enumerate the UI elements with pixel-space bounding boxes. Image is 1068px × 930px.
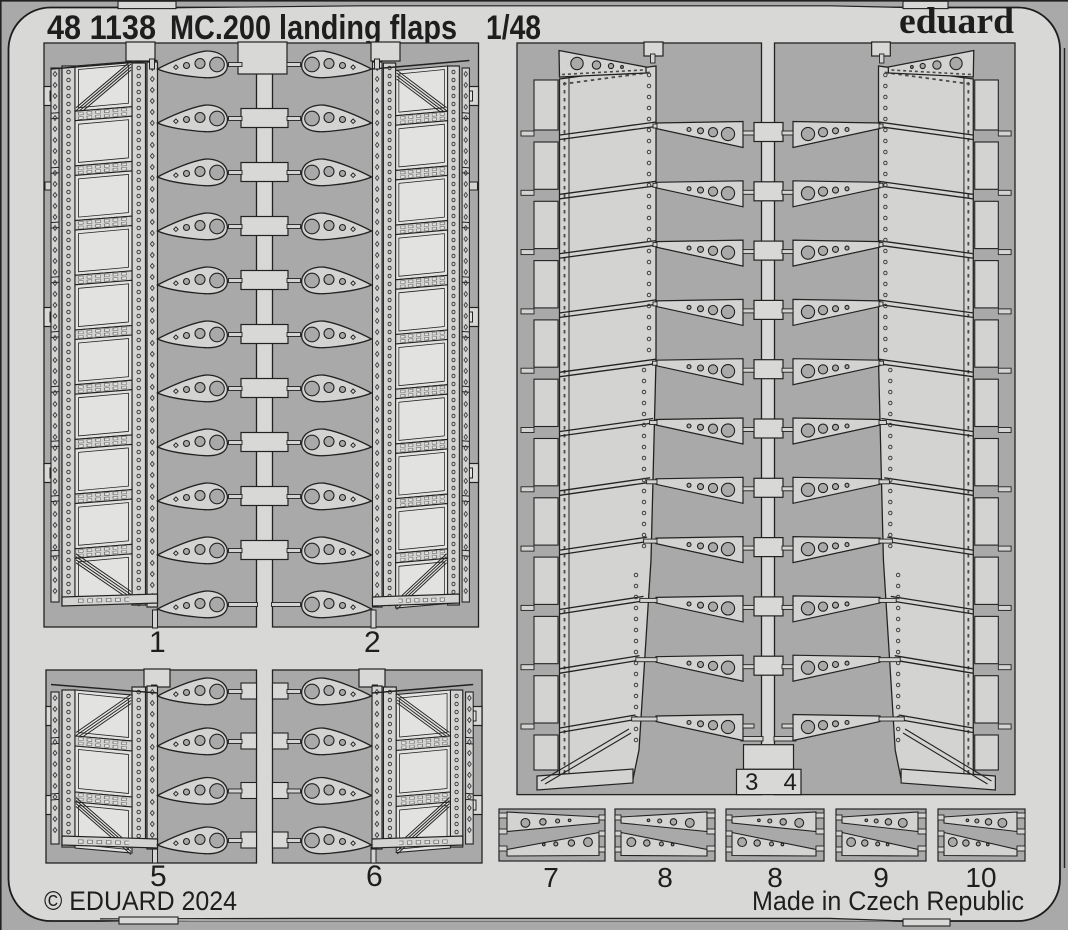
svg-text:4: 4 [784, 769, 797, 796]
svg-text:1/48: 1/48 [486, 9, 541, 47]
svg-text:48 1138: 48 1138 [47, 9, 156, 47]
svg-text:3: 3 [745, 769, 758, 796]
svg-text:2: 2 [364, 626, 381, 659]
svg-text:8: 8 [657, 862, 673, 893]
svg-text:7: 7 [543, 862, 559, 893]
svg-text:eduard: eduard [899, 1, 1014, 42]
svg-text:1: 1 [149, 626, 166, 659]
svg-text:© EDUARD 2024: © EDUARD 2024 [44, 886, 237, 916]
svg-text:MC.200 landing flaps: MC.200 landing flaps [170, 9, 457, 47]
svg-text:Made in Czech Republic: Made in Czech Republic [752, 886, 1024, 916]
svg-text:6: 6 [366, 860, 383, 893]
